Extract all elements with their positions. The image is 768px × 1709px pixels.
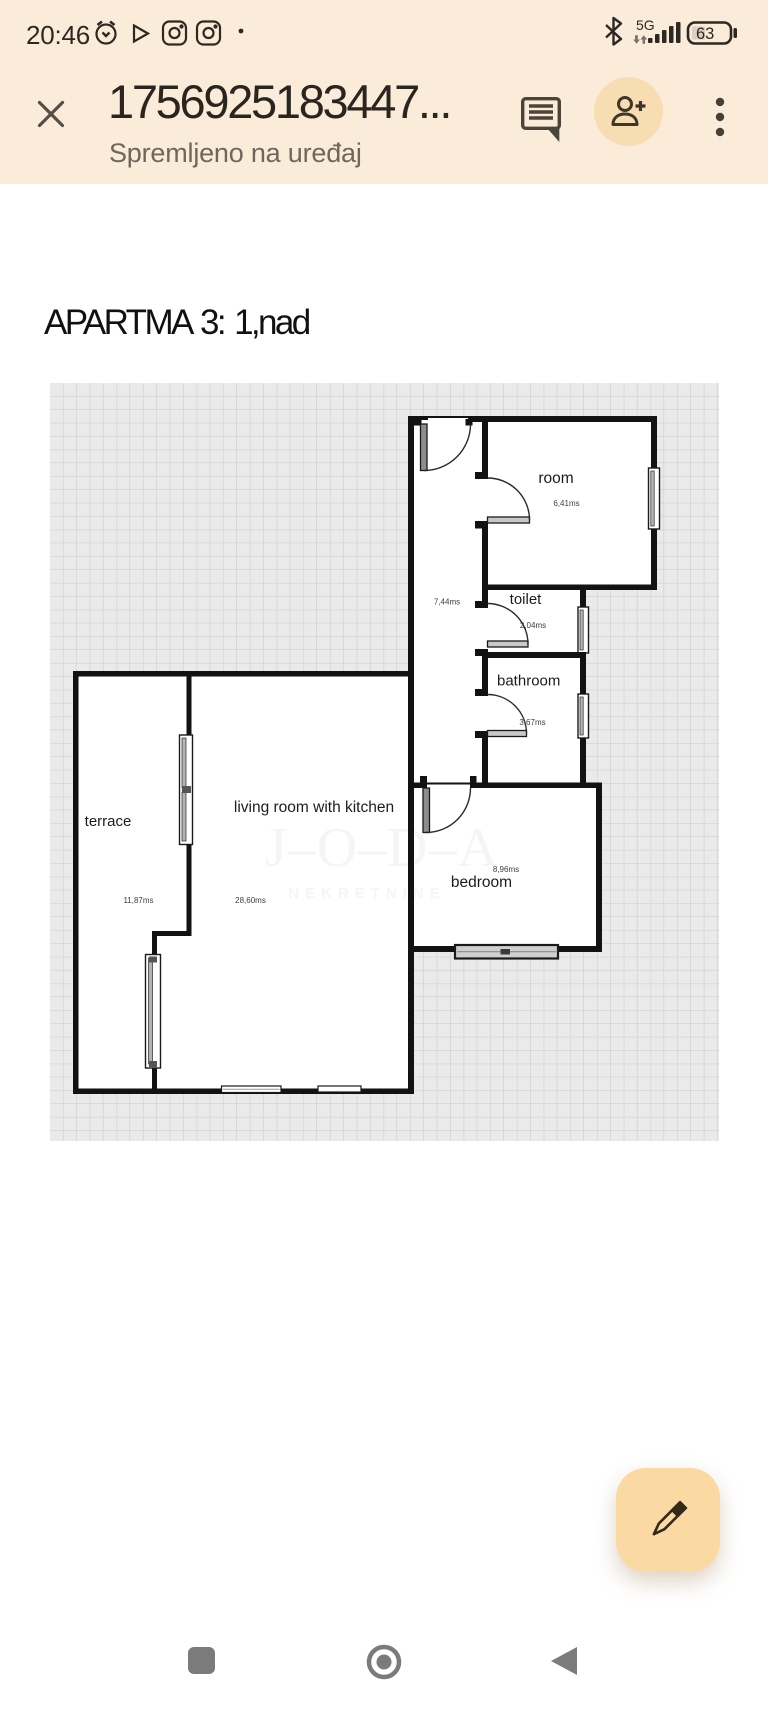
svg-text:5G: 5G <box>636 17 655 33</box>
svg-text:room: room <box>538 470 573 487</box>
svg-text:3,67ms: 3,67ms <box>519 718 545 727</box>
svg-text:11,87ms: 11,87ms <box>123 896 153 905</box>
svg-text:bedroom: bedroom <box>451 874 512 891</box>
svg-text:8,96ms: 8,96ms <box>493 865 519 874</box>
svg-text:6,41ms: 6,41ms <box>553 499 579 508</box>
svg-text:28,60ms: 28,60ms <box>235 896 266 905</box>
svg-text:bathroom: bathroom <box>497 673 560 690</box>
svg-text:63: 63 <box>696 25 714 43</box>
svg-text:terrace: terrace <box>85 813 132 830</box>
svg-text:living room with kitchen: living room with kitchen <box>234 799 394 816</box>
svg-text:7,44ms: 7,44ms <box>434 598 460 607</box>
svg-text:toilet: toilet <box>510 591 543 608</box>
svg-text:J–O–D–A: J–O–D–A <box>265 817 499 879</box>
svg-text:NEKRETNINE: NEKRETNINE <box>288 885 446 902</box>
svg-text:2,04ms: 2,04ms <box>520 621 546 630</box>
